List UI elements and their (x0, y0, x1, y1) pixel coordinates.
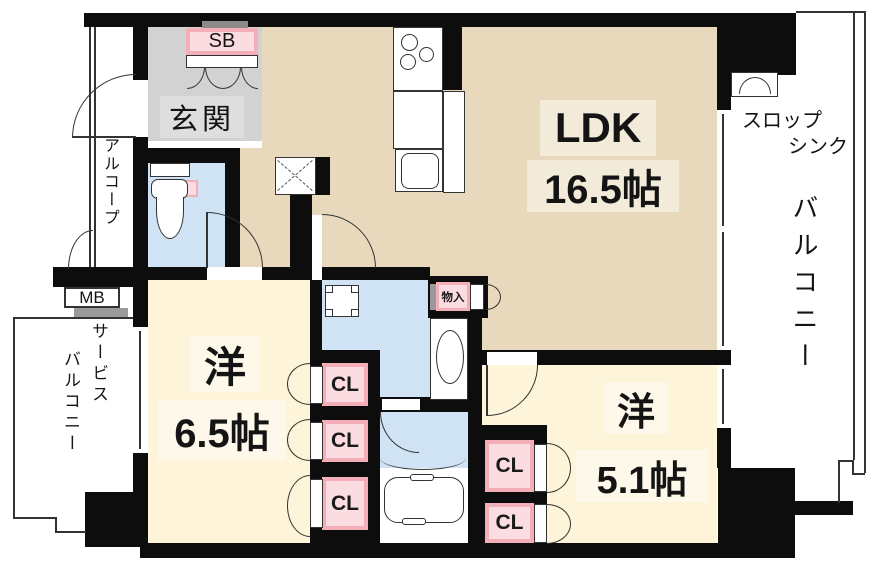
ldk-size-label: 16.5帖 (544, 157, 662, 215)
west2-name-bg: 洋 (604, 382, 668, 434)
window-line (722, 114, 724, 226)
wall (468, 280, 482, 556)
service-balcony-label-line2: バルコニー (58, 350, 83, 485)
slop-sink-icon (731, 72, 778, 97)
alcove-rail-line (94, 27, 96, 267)
west2-door-leaf (486, 365, 488, 416)
wall (442, 13, 462, 90)
closet-label: CL (496, 511, 524, 535)
closet-label: CL (331, 492, 359, 516)
floorplan: SB MB 物入 CL CL CL CL CL 玄関 LDK 16.5帖 洋 6… (0, 0, 880, 576)
closet-box: CL (322, 363, 368, 406)
west2-size-bg: 5.1帖 (576, 450, 708, 502)
wall (84, 13, 796, 27)
burner-icon (400, 54, 416, 70)
balcony-end-wall (795, 501, 853, 515)
service-balcony-label-line1: サービス (86, 322, 111, 434)
west1-window (133, 327, 148, 453)
kitchen-sink-icon (395, 149, 443, 192)
closet-door-panel (310, 422, 323, 460)
wall (717, 27, 731, 110)
mb-label: MB (79, 288, 105, 308)
service-balcony-line (13, 317, 133, 319)
balcony-step-line (852, 460, 854, 474)
shoe-box: SB (186, 28, 258, 55)
west1-size-label: 6.5帖 (174, 401, 270, 459)
slop-sink-label-line1: スロップ (742, 104, 822, 133)
window-line (722, 369, 724, 424)
service-balcony-line (13, 317, 15, 518)
west1-name-label: 洋 (204, 334, 246, 395)
window-line (139, 331, 141, 449)
closet-label: CL (331, 373, 359, 397)
window-line (722, 232, 724, 346)
wall (133, 27, 148, 80)
closet-box: CL (485, 503, 534, 543)
service-balcony-line (13, 517, 56, 519)
sb-shelf (186, 55, 258, 68)
meter-box: MB (64, 287, 120, 308)
closet-box: CL (322, 420, 368, 462)
west1-door-leaf (206, 212, 208, 268)
entrance-label-bg: 玄関 (160, 96, 244, 138)
wall (290, 195, 312, 267)
storage-box: 物入 (436, 282, 470, 311)
bathtub-detail (410, 474, 434, 481)
west2-name-label: 洋 (617, 381, 655, 436)
balcony-step-line (838, 460, 840, 503)
closet-label: CL (496, 454, 524, 478)
service-balcony-line (55, 531, 86, 533)
door-opening (207, 267, 262, 280)
west2-window (717, 365, 731, 428)
sb-label: SB (209, 30, 236, 53)
toilet-shelf (150, 163, 190, 177)
pan-corner (351, 285, 359, 293)
wall (310, 280, 322, 350)
wall (53, 267, 133, 287)
closet-box: CL (485, 440, 534, 492)
pillar-hatch (275, 157, 316, 195)
door-opening (382, 399, 420, 410)
wall (717, 428, 731, 468)
closet-door-panel (534, 444, 547, 492)
kitchen-side-counter (443, 91, 465, 193)
slop-sink-label-line2: シンク (788, 130, 848, 159)
kitchen-counter (393, 91, 443, 149)
bathtub-detail (402, 518, 426, 525)
balcony-parapet-line (853, 11, 855, 460)
door-opening (312, 215, 322, 280)
washer-pan-icon (325, 285, 359, 317)
pan-corner (325, 309, 333, 317)
west1-name-bg: 洋 (190, 336, 260, 392)
west1-size-bg: 6.5帖 (158, 400, 286, 460)
burner-icon (419, 47, 434, 62)
toilet-tank-icon (151, 179, 188, 199)
storage-door-panel (470, 284, 484, 310)
ldk-name-bg: LDK (540, 100, 656, 156)
closet-door-panel (310, 366, 323, 404)
balcony-parapet-line (864, 11, 866, 473)
closet-door-panel (310, 479, 323, 528)
washbasin-icon (430, 318, 468, 400)
burner-icon (401, 34, 418, 51)
wall (140, 543, 795, 558)
entrance-door-arc (72, 74, 136, 138)
balcony-label: バルコニー (786, 194, 823, 399)
bathtub-icon (384, 477, 464, 523)
ldk-name-label: LDK (555, 104, 641, 152)
wall (133, 267, 430, 280)
pan-corner (325, 285, 333, 293)
mb-door-arc (68, 230, 93, 269)
ldk-size-bg: 16.5帖 (527, 160, 679, 212)
balcony-step-line (852, 473, 865, 475)
pan-corner (351, 309, 359, 317)
wall (133, 148, 240, 163)
closet-box: CL (322, 477, 368, 530)
wall (315, 157, 330, 195)
basin-bowl (436, 330, 464, 384)
stove-icon (393, 27, 443, 91)
closet-door-panel (534, 504, 547, 543)
storage-label: 物入 (442, 289, 465, 305)
door-opening (487, 352, 537, 365)
mb-strip (74, 308, 128, 317)
closet-label: CL (331, 429, 359, 453)
west2-size-label: 5.1帖 (597, 449, 688, 504)
wall (718, 468, 795, 548)
alcove-label: アルコープ (97, 137, 121, 247)
ldk-balcony-window (717, 110, 731, 350)
slop-sink-basin (739, 77, 771, 94)
service-balcony-line (55, 517, 57, 532)
entrance-label: 玄関 (169, 96, 235, 138)
sink-basin (401, 153, 439, 189)
entrance-step (148, 141, 262, 148)
balcony-parapet-line (796, 11, 865, 13)
